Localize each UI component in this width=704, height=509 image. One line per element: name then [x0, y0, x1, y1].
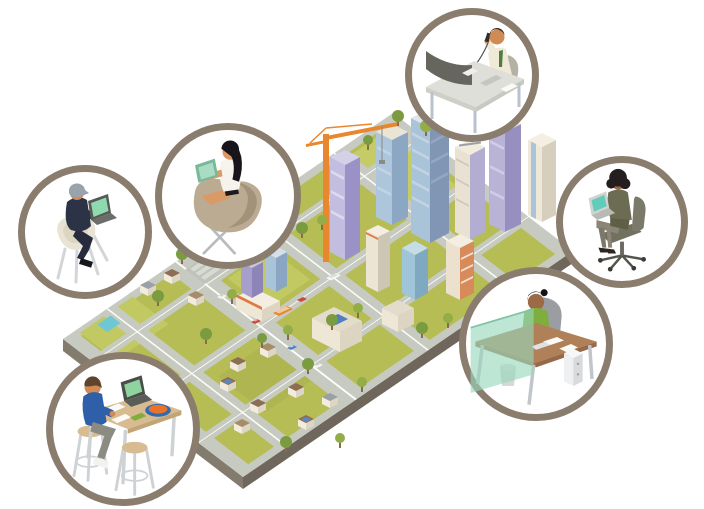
vignette-desk-worker: [459, 267, 613, 421]
vignette-egg-chair-worker: [155, 123, 301, 269]
hair-bun: [541, 289, 548, 296]
heel: [598, 248, 608, 253]
chair-back: [632, 196, 646, 231]
tower-cream-stripe: [528, 133, 556, 222]
head: [528, 294, 544, 310]
chair-column: [620, 242, 624, 256]
chair-base: [600, 255, 643, 269]
tower-blue-left: [376, 124, 408, 225]
tower-cream-small: [366, 225, 390, 292]
construction-tower: [330, 150, 360, 260]
salad-bowl: [145, 404, 171, 417]
illustration-canvas: [0, 0, 704, 509]
person-with-cap: [66, 183, 101, 268]
vignette-casual-laptop-worker: [18, 165, 152, 299]
lower-leg: [598, 228, 606, 248]
cap: [69, 183, 89, 197]
stool-empty: [116, 442, 153, 494]
laptop: [88, 194, 117, 225]
pants: [90, 422, 116, 459]
vignette-cafe-table-worker: [46, 352, 200, 506]
vignette-executive-on-phone: [405, 8, 539, 142]
tower-glass-round: [402, 241, 428, 300]
curved-monitor: [426, 51, 472, 85]
tree: [335, 433, 345, 448]
vignette-office-chair-worker: [556, 156, 688, 288]
stool-seat: [122, 442, 148, 454]
hand: [110, 411, 116, 417]
privacy-panel: [471, 309, 534, 393]
tower-cream-blue: [455, 140, 485, 240]
file-cabinet: [564, 349, 583, 386]
